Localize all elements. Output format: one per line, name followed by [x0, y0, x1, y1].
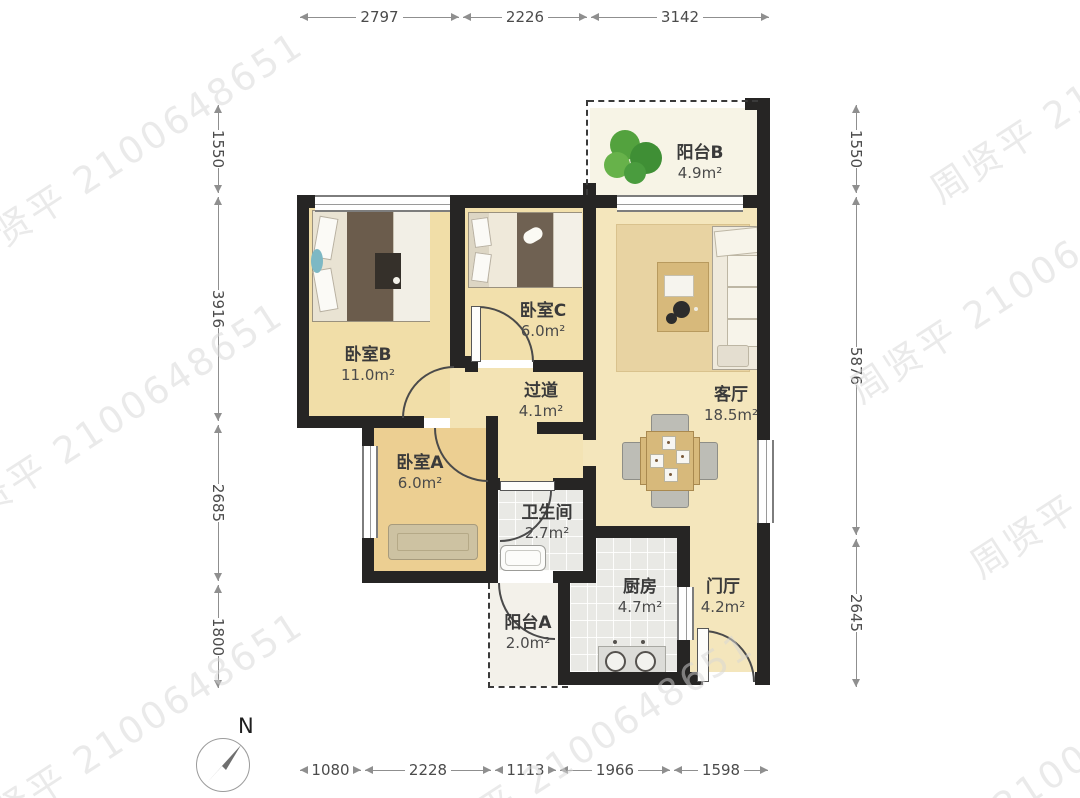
room-name: 卧室C	[520, 296, 566, 321]
door-leaf-entrance	[697, 628, 709, 682]
window-living-east	[757, 440, 774, 523]
dimension-bottom-3: 1113	[495, 761, 556, 779]
balcony-a-dashed-outline	[488, 583, 492, 688]
watermark-text: 周贤平 2100648651	[918, 0, 1080, 214]
window-living-room	[617, 195, 743, 212]
wall	[486, 416, 498, 428]
room-area: 18.5m²	[704, 406, 758, 424]
room-area: 11.0m²	[341, 366, 395, 384]
room-name: 阳台B	[677, 138, 724, 163]
wall	[558, 672, 703, 685]
watermark-text: 周贤平 2100648651	[868, 640, 1080, 798]
room-name: 客厅	[714, 380, 748, 405]
bed-a	[388, 524, 478, 560]
room-area: 4.1m²	[519, 402, 563, 420]
room-area: 2.0m²	[506, 634, 550, 652]
compass-needle-icon	[197, 739, 249, 791]
dimension-right-3: 2645	[847, 539, 865, 687]
wall	[362, 571, 490, 583]
bed-b	[312, 210, 430, 322]
room-name: 阳台A	[504, 608, 551, 633]
room-name: 过道	[524, 376, 558, 401]
room-name: 卫生间	[522, 498, 573, 523]
wall	[553, 571, 596, 583]
dimension-top-1: 2797	[300, 8, 459, 26]
room-area: 4.2m²	[701, 598, 745, 616]
dimension-bottom-5: 1598	[674, 761, 768, 779]
dimension-bottom-2: 2228	[365, 761, 491, 779]
room-area: 6.0m²	[398, 474, 442, 492]
room-label-balcony-b: 阳台B 4.9m²	[677, 138, 724, 182]
door-leaf-bathroom	[500, 481, 555, 491]
wall	[755, 672, 770, 685]
wall	[558, 583, 570, 685]
kitchen-floor-lower	[570, 583, 596, 672]
dimension-left-3: 2685	[209, 425, 227, 581]
room-label-hallway: 过道 4.1m²	[519, 376, 563, 420]
kitchen-sliding-door	[677, 587, 694, 640]
balcony-b-dashed-outline	[588, 100, 758, 104]
bathtub	[500, 545, 546, 571]
room-name: 门厅	[706, 572, 740, 597]
dimension-bottom-4: 1966	[560, 761, 670, 779]
wall	[297, 195, 309, 428]
wall	[757, 195, 770, 440]
compass-north-label: N	[238, 714, 254, 738]
wall	[553, 478, 596, 490]
room-label-balcony-a: 阳台A 2.0m²	[504, 608, 551, 652]
dimension-top-3: 3142	[591, 8, 769, 26]
wall	[450, 195, 583, 208]
room-label-bedroom-a: 卧室A 6.0m²	[396, 448, 443, 492]
wall	[757, 100, 770, 195]
coffee-table	[657, 262, 709, 332]
wall	[583, 195, 596, 440]
watermark-text: 周贤平 2100648651	[0, 285, 293, 548]
room-name: 厨房	[623, 572, 657, 597]
bed-c	[468, 212, 582, 288]
window-bedroom-a	[362, 446, 378, 538]
room-label-living-room: 客厅 18.5m²	[704, 380, 758, 424]
room-area: 4.7m²	[618, 598, 662, 616]
wall	[677, 526, 690, 587]
dimension-bottom-1: 1080	[300, 761, 361, 779]
compass: N	[172, 712, 282, 798]
wall	[537, 422, 596, 434]
room-area: 4.9m²	[678, 164, 722, 182]
plant-icon	[624, 162, 646, 184]
door-leaf-bedroom-c	[471, 306, 481, 362]
room-label-bedroom-b: 卧室B 11.0m²	[341, 340, 395, 384]
room-area: 6.0m²	[521, 322, 565, 340]
room-label-kitchen: 厨房 4.7m²	[618, 572, 662, 616]
room-label-foyer: 门厅 4.2m²	[701, 572, 745, 616]
watermark-text: 周贤平 2100648651	[958, 325, 1080, 588]
wall	[757, 523, 770, 685]
window-bedroom-b	[315, 195, 450, 212]
wall	[583, 526, 690, 538]
floor-plan: 阳台B 4.9m² 卧室B 11.0m² 卧室C 6.0m² 过道 4.1m² …	[0, 0, 1080, 798]
dimension-left-4: 1800	[209, 585, 227, 688]
wall	[486, 478, 500, 490]
wall	[450, 208, 465, 368]
room-name: 卧室B	[345, 340, 392, 365]
room-label-bathroom: 卫生间 2.7m²	[522, 498, 573, 542]
balcony-b-dashed-outline	[586, 100, 590, 195]
dimension-left-2: 3916	[209, 197, 227, 421]
balcony-a-dashed-outline	[488, 686, 568, 690]
dimension-right-1: 1550	[847, 105, 865, 193]
dimension-right-2: 5876	[847, 197, 865, 535]
sofa	[712, 226, 762, 370]
room-area: 2.7m²	[525, 524, 569, 542]
watermark-text: 周贤平 2100648651	[0, 15, 313, 278]
dimension-left-1: 1550	[209, 105, 227, 193]
passage-patch	[583, 440, 596, 466]
dimension-top-2: 2226	[463, 8, 587, 26]
compass-circle	[196, 738, 250, 792]
room-name: 卧室A	[396, 448, 443, 473]
stove	[598, 646, 666, 674]
room-label-bedroom-c: 卧室C 6.0m²	[520, 296, 566, 340]
